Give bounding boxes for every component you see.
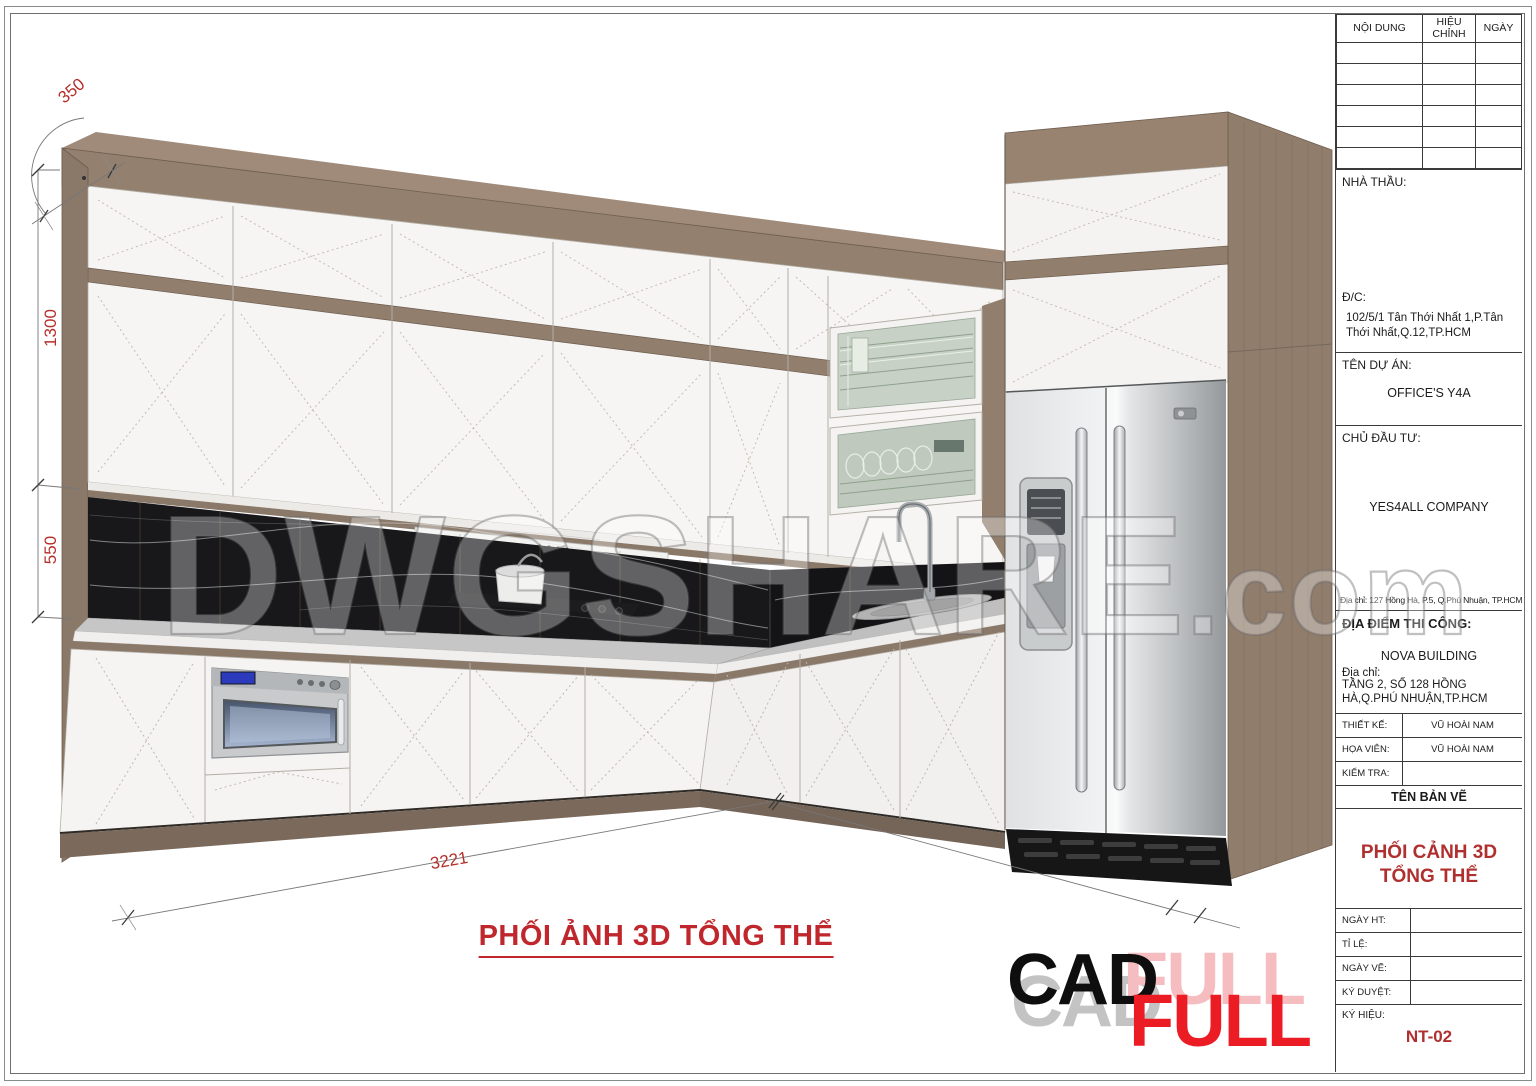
site-box: ĐỊA ĐIỂM THI CÔNG: NOVA BUILDING Địa chỉ… (1336, 611, 1522, 714)
designer-label: THIẾT KẾ: (1336, 720, 1402, 731)
dim-label-350: 350 (54, 74, 88, 107)
drafter-label: HỌA VIÊN: (1336, 744, 1402, 755)
checker-row: KIỂM TRA: (1336, 762, 1522, 786)
revision-col-content: NỘI DUNG (1337, 15, 1423, 43)
project-box: TÊN DỰ ÁN: OFFICE'S Y4A (1336, 353, 1522, 426)
microwave-handle (338, 699, 344, 745)
site-address: TẦNG 2, SỐ 128 HỒNG HÀ,Q.PHÚ NHUẬN,TP.HC… (1336, 679, 1522, 707)
draw-date-label: NGÀY VẼ: (1336, 963, 1410, 974)
approval-label: KÝ DUYỆT: (1336, 987, 1410, 998)
drafter-row: HỌA VIÊN: VŨ HOÀI NAM (1336, 738, 1522, 762)
cadfull-logo: CAD FULL CAD FULL (1005, 942, 1335, 1080)
project-label: TÊN DỰ ÁN: (1336, 353, 1522, 372)
drawing-name: PHỐI CẢNH 3D TỔNG THỂ (1336, 809, 1522, 889)
title-block: NỘI DUNG HIỆU CHỈNH NGÀY NHÀ THẦU: Đ/C: … (1335, 14, 1522, 1072)
fridge-handle-right (1114, 426, 1125, 790)
draw-date-row: NGÀY VẼ: (1336, 957, 1522, 981)
finish-date-row: NGÀY HT: (1336, 909, 1522, 933)
project-name: OFFICE'S Y4A (1336, 386, 1522, 400)
drawing-name-header: TÊN BẢN VẼ (1336, 786, 1522, 809)
microwave-oven (212, 668, 348, 758)
investor-box: CHỦ ĐẦU TƯ: YES4ALL COMPANY Địa chỉ: 127… (1336, 426, 1522, 611)
code-label: KÝ HIỆU: (1336, 1005, 1522, 1021)
revision-col-revision: HIỆU CHỈNH (1423, 15, 1476, 43)
drawing-caption: PHỐI ẢNH 3D TỔNG THỂ (479, 920, 834, 958)
refrigerator (1006, 380, 1232, 886)
contractor-address: 102/5/1 Tân Thới Nhất 1,P.Tân Thới Nhất,… (1346, 311, 1518, 342)
investor-address: Địa chỉ: 127 Hồng Hà, P.5, Q.Phú Nhuận, … (1336, 595, 1522, 608)
fridge-base-vents (1006, 829, 1232, 886)
scale-row: TỈ LỆ: (1336, 933, 1522, 957)
revision-col-date: NGÀY (1476, 15, 1522, 43)
microwave-display (221, 672, 255, 684)
dim-label-1300: 1300 (41, 309, 60, 347)
code-box: KÝ HIỆU: NT-02 (1336, 1005, 1522, 1067)
revision-table: NỘI DUNG HIỆU CHỈNH NGÀY (1336, 14, 1522, 170)
site-label: ĐỊA ĐIỂM THI CÔNG: (1336, 611, 1522, 631)
approval-row: KÝ DUYỆT: (1336, 981, 1522, 1005)
code-value: NT-02 (1336, 1027, 1522, 1047)
site-name: NOVA BUILDING (1336, 649, 1522, 663)
fridge-brand-badge (1174, 408, 1196, 419)
drafter-name: VŨ HOÀI NAM (1402, 738, 1522, 761)
fridge-dispenser (1020, 478, 1072, 650)
fridge-handle-left (1076, 428, 1087, 792)
contractor-label: NHÀ THẦU: (1336, 170, 1522, 189)
checker-label: KIỂM TRA: (1336, 768, 1402, 779)
designer-row: THIẾT KẾ: VŨ HOÀI NAM (1336, 714, 1522, 738)
contractor-box: NHÀ THẦU: Đ/C: 102/5/1 Tân Thới Nhất 1,P… (1336, 170, 1522, 353)
investor-name: YES4ALL COMPANY (1336, 500, 1522, 514)
site-address-label: Địa chỉ: (1336, 663, 1522, 679)
scale-label: TỈ LỆ: (1336, 939, 1410, 950)
designer-name: VŨ HOÀI NAM (1402, 714, 1522, 737)
drawing-name-box: PHỐI CẢNH 3D TỔNG THỂ (1336, 809, 1522, 909)
finish-date-label: NGÀY HT: (1336, 915, 1410, 926)
dim-label-3221: 3221 (429, 848, 470, 873)
dim-label-550: 550 (41, 536, 60, 564)
logo-full: FULL (1129, 984, 1310, 1058)
contractor-address-label: Đ/C: (1336, 285, 1372, 304)
investor-label: CHỦ ĐẦU TƯ: (1336, 426, 1522, 445)
